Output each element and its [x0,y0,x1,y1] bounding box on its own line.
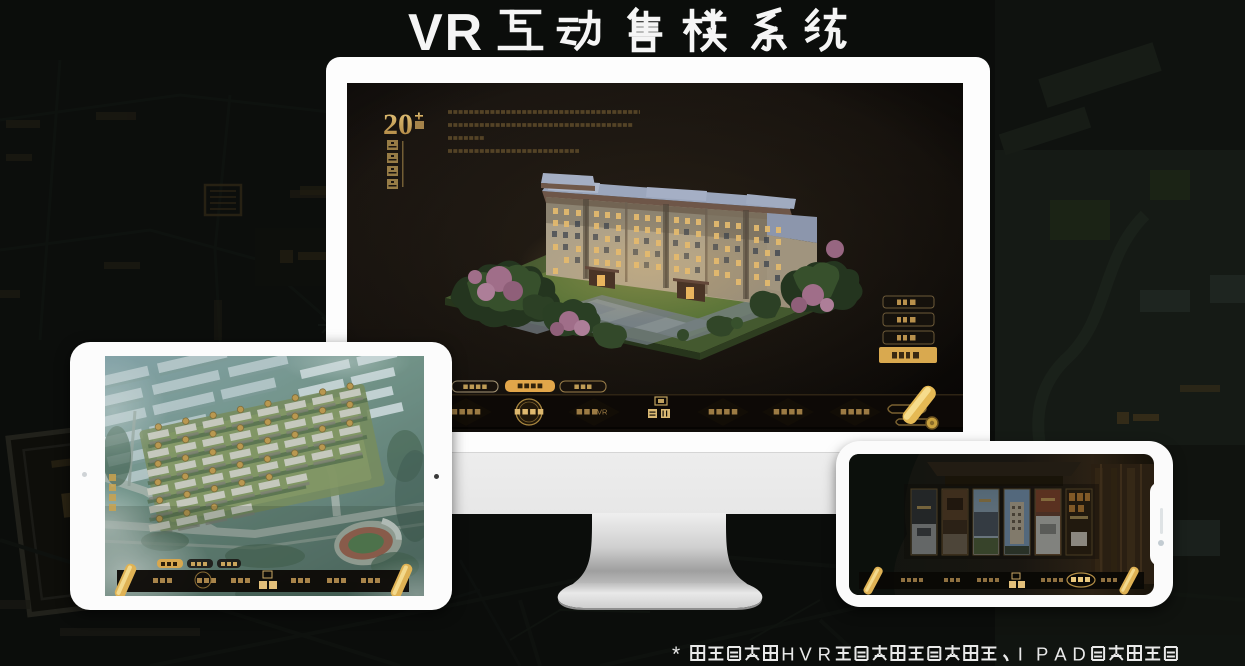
svg-text:D: D [1072,644,1085,665]
svg-text:V: V [799,644,812,665]
svg-text:R: R [818,644,831,665]
svg-text:20: 20 [383,108,413,141]
svg-text:A: A [1054,644,1067,665]
svg-text:P: P [1036,644,1048,665]
svg-text:I: I [1018,644,1023,665]
svg-text:VR: VR [597,408,608,417]
svg-text:H: H [781,644,794,665]
svg-text:*: * [672,643,680,666]
svg-text:VR: VR [408,4,484,62]
